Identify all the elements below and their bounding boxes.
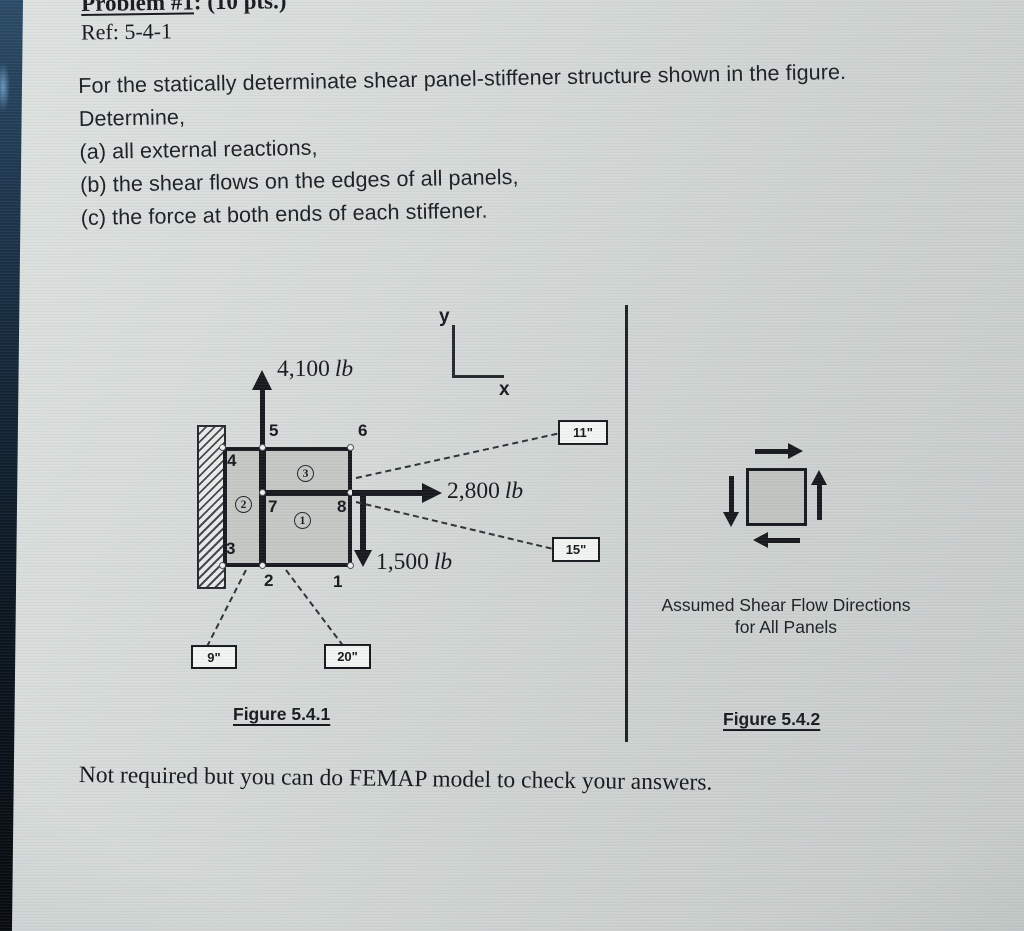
node-dot	[347, 444, 354, 451]
screen-left-bezel	[0, 0, 23, 931]
reference-label: Ref: 5-4-1	[81, 18, 172, 45]
figure2-caption: Figure 5.4.2	[723, 709, 820, 730]
shear-arrow-left-shaft	[729, 476, 734, 512]
figure1-caption: Figure 5.4.1	[233, 704, 330, 725]
dim-leader-15	[356, 501, 552, 550]
node-label-8: 8	[337, 498, 346, 515]
force-up-arrow-shaft	[260, 389, 265, 448]
node-label-6: 6	[358, 422, 367, 439]
shear-arrow-top-right-icon	[788, 443, 803, 459]
node-label-4: 4	[227, 452, 236, 469]
force-down-arrowhead-icon	[354, 550, 372, 567]
panel-number-2: 2	[235, 496, 252, 513]
problem-header: Problem #1: (10 pts.)	[81, 0, 287, 17]
shear-arrow-bottom-left-icon	[753, 532, 768, 548]
force-down-unit: lb	[434, 549, 452, 575]
shear-arrow-bottom-shaft	[767, 538, 800, 543]
axis-x-line	[452, 375, 504, 378]
panel-number-3: 3	[297, 465, 314, 482]
node-dot	[347, 562, 354, 569]
node-label-5: 5	[269, 422, 278, 439]
force-down-value: 1,500	[376, 549, 429, 575]
force-up-label: 4,100lb	[277, 356, 353, 383]
femap-note: Not required but you can do FEMAP model …	[79, 762, 713, 797]
figures-divider	[625, 305, 628, 742]
force-right-value: 2,800	[447, 478, 500, 504]
force-down-label: 1,500lb	[376, 549, 452, 576]
node-dot	[259, 562, 266, 569]
node-dot	[259, 444, 266, 451]
force-right-arrowhead-icon	[422, 483, 442, 503]
force-right-unit: lb	[505, 478, 523, 504]
axis-y-line	[452, 325, 455, 378]
problem-statement: For the statically determinate shear pan…	[78, 53, 1021, 235]
force-up-unit: lb	[335, 356, 353, 382]
shear-flow-note: Assumed Shear Flow Directions for All Pa…	[640, 594, 932, 638]
force-up-arrowhead-icon	[252, 370, 272, 390]
stiffener-horizontal-mid	[263, 490, 352, 496]
shear-arrow-left-down-icon	[723, 512, 739, 527]
node-label-1: 1	[333, 573, 342, 590]
node-dot	[219, 562, 226, 569]
shear-arrow-top-shaft	[755, 449, 788, 454]
problem-points: : (10 pts.)	[194, 0, 287, 14]
node-label-7: 7	[268, 498, 277, 515]
dim-leader-11	[356, 433, 558, 479]
shear-flow-note-line1: Assumed Shear Flow Directions	[640, 594, 932, 616]
force-up-value: 4,100	[277, 356, 330, 382]
problem-title: Problem #1	[81, 0, 194, 16]
node-label-2: 2	[264, 572, 273, 589]
panel-number-1: 1	[294, 512, 311, 529]
node-dot	[219, 444, 226, 451]
shear-flow-square	[746, 468, 807, 526]
shear-flow-note-line2: for All Panels	[640, 616, 932, 638]
shear-arrow-right-up-icon	[811, 470, 827, 485]
axis-x-label: x	[499, 379, 510, 401]
dim-box-15: 15"	[552, 537, 600, 562]
node-label-3: 3	[226, 540, 235, 557]
axis-y-label: y	[439, 306, 450, 328]
stiffener-vertical-mid	[259, 447, 266, 567]
shear-arrow-right-shaft	[817, 484, 822, 520]
dim-box-11: 11"	[558, 420, 608, 445]
force-right-label: 2,800lb	[447, 478, 523, 505]
dim-box-20: 20"	[324, 644, 371, 669]
photographed-problem-sheet: Problem #1: (10 pts.) Ref: 5-4-1 For the…	[0, 0, 1024, 931]
dim-box-9: 9"	[191, 645, 237, 669]
node-dot	[259, 489, 266, 496]
